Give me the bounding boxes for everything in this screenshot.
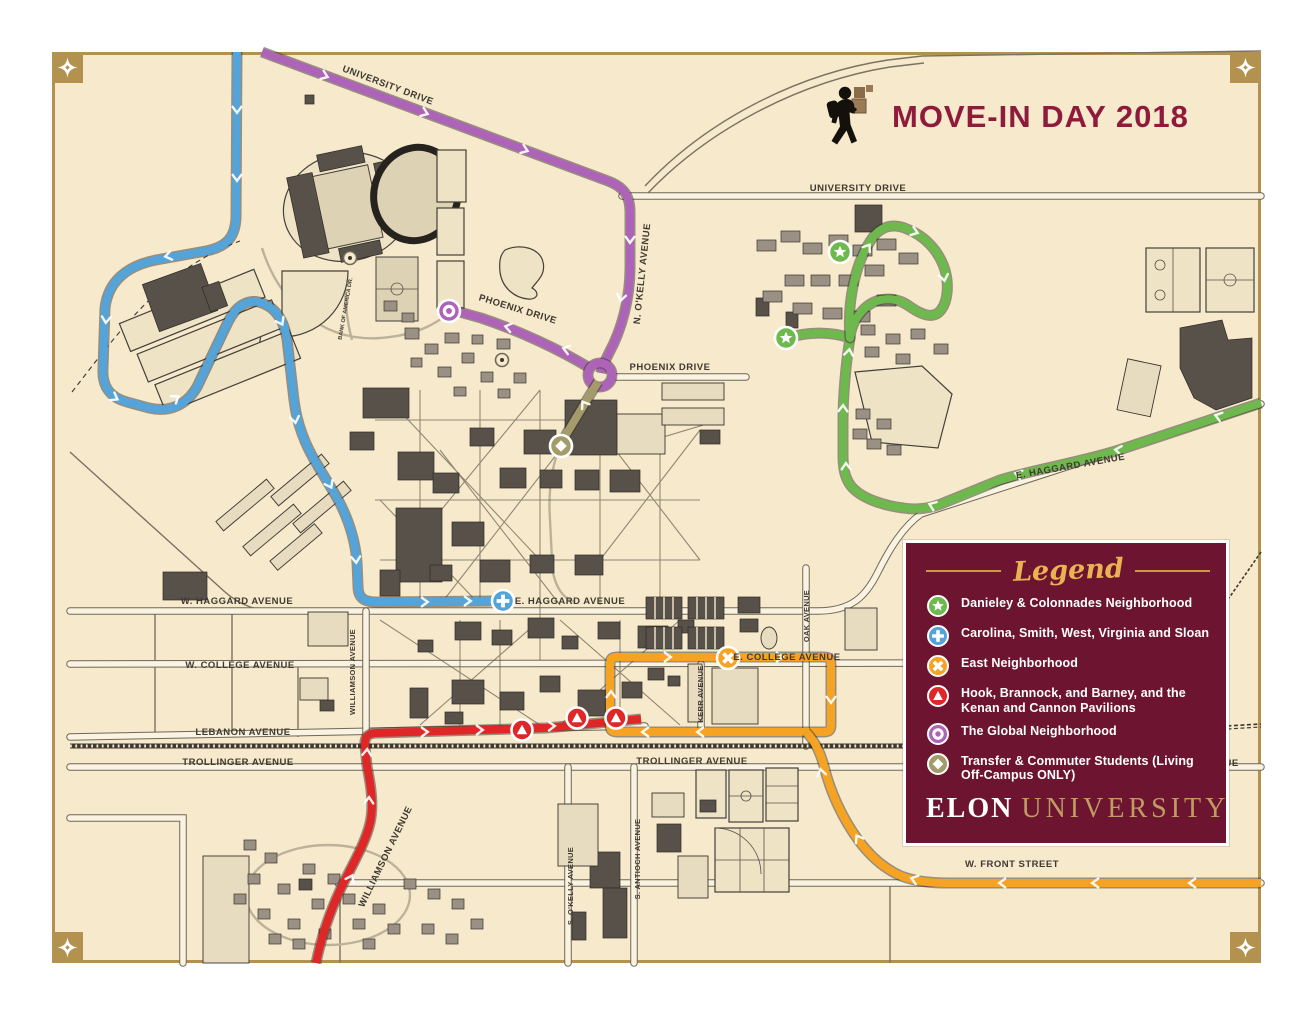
ring-badge-icon [926, 722, 950, 746]
street-label-e-haggard: E. HAGGARD AVENUE [515, 596, 625, 607]
street-label-phoenix-drive: PHOENIX DRIVE [630, 362, 711, 373]
street-label-e-college: E. COLLEGE AVENUE [733, 652, 840, 663]
street-label-trollinger: TROLLINGER AVENUE [636, 756, 747, 767]
star-badge-icon [926, 594, 950, 618]
street-label-trollinger: TROLLINGER AVENUE [182, 757, 293, 768]
marker-transfer-diamond [550, 435, 572, 457]
legend-item-transfer: Transfer & Commuter Students (Living Off… [926, 754, 1210, 784]
street-label-w-haggard: W. HAGGARD AVENUE [181, 596, 293, 607]
legend-header: Legend [926, 555, 1210, 586]
marker-hook-triangle [606, 708, 627, 729]
map-title-block: MOVE-IN DAY 2018 [818, 84, 1189, 150]
tennis-courts [1146, 248, 1254, 312]
marker-carolina-plus [492, 590, 514, 612]
marker-hook-triangle [512, 720, 533, 741]
legend-item-danieley: Danieley & Colonnades Neighborhood [926, 596, 1210, 618]
street-label-s-okelly: S. O'KELLY AVENUE [566, 847, 575, 925]
map-title: MOVE-IN DAY 2018 [892, 99, 1189, 135]
street-label-lebanon: LEBANON AVENUE [195, 727, 290, 738]
marker-global-ring [438, 300, 460, 322]
marker-hook-triangle [567, 708, 588, 729]
soccer-field [376, 257, 418, 321]
street-label-kerr: KERR AVENUE [696, 665, 705, 722]
diamond-badge-icon [926, 752, 950, 776]
legend-item-global: The Global Neighborhood [926, 724, 1210, 746]
x-badge-icon [926, 654, 950, 678]
marker-danieley-star [829, 241, 851, 263]
move-in-day-map-page: UNIVERSITY DRIVE UNIVERSITY DRIVE PHOENI… [0, 0, 1313, 1016]
street-label-oak: OAK AVENUE [802, 590, 811, 642]
street-label-s-antioch: S. ANTIOCH AVENUE [633, 819, 642, 900]
marker-danieley-star [775, 327, 797, 349]
legend-item-hook: Hook, Brannock, and Barney, and the Kena… [926, 686, 1210, 716]
street-label-university-drive: UNIVERSITY DRIVE [810, 183, 907, 194]
legend-item-carolina: Carolina, Smith, West, Virginia and Sloa… [926, 626, 1210, 648]
campus-map: UNIVERSITY DRIVE UNIVERSITY DRIVE PHOENI… [0, 0, 1313, 1016]
street-label-w-front: W. FRONT STREET [965, 859, 1059, 870]
triangle-badge-icon [926, 684, 950, 708]
elon-university-logo: ELONUNIVERSITY [926, 793, 1210, 825]
street-label-williamson: WILLIAMSON AVENUE [348, 629, 357, 715]
plus-badge-icon [926, 624, 950, 648]
mover-person-icon [818, 84, 876, 150]
legend: Legend Danieley & Colonnades Neighborhoo… [903, 540, 1229, 846]
street-label-w-college: W. COLLEGE AVENUE [185, 660, 294, 671]
legend-item-east: East Neighborhood [926, 656, 1210, 678]
legend-title: Legend [1010, 553, 1126, 588]
